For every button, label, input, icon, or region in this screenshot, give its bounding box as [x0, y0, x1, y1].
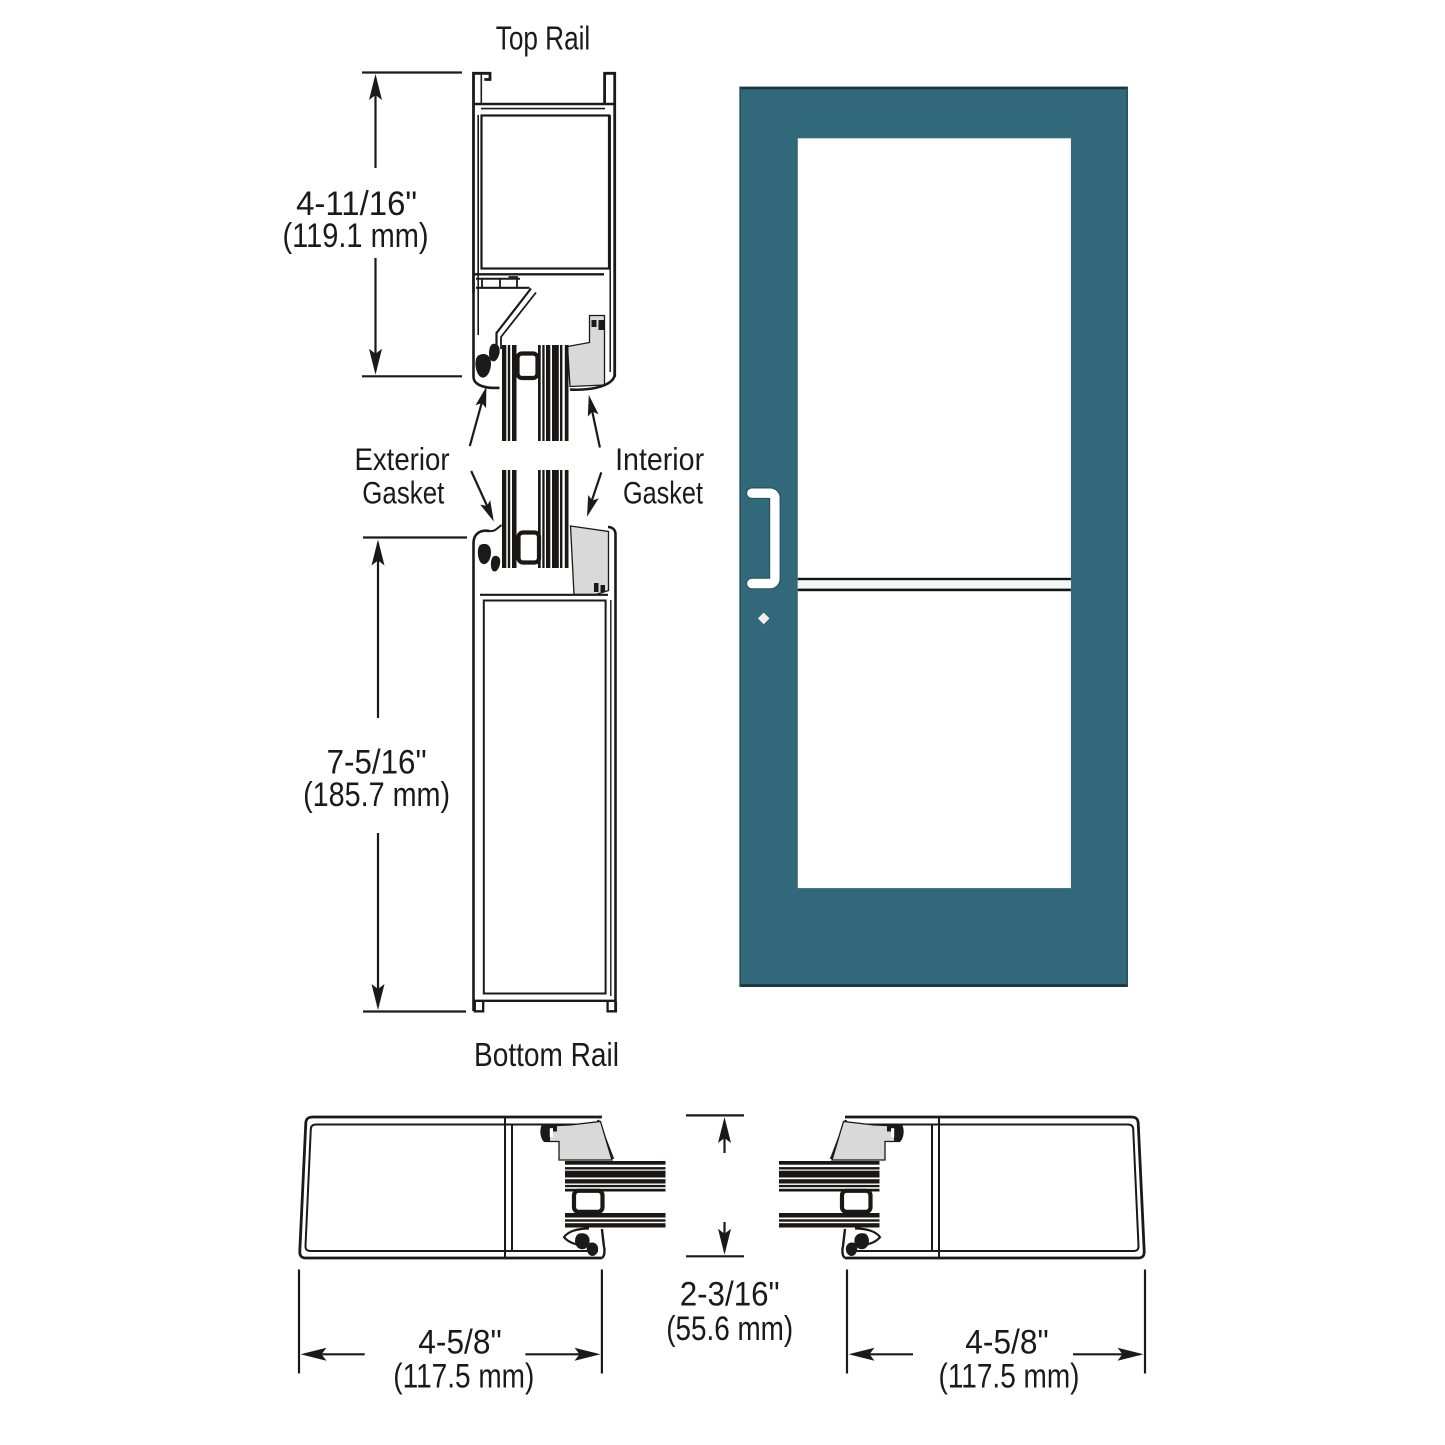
svg-text:Gasket: Gasket	[362, 475, 444, 511]
svg-text:(119.1 mm): (119.1 mm)	[283, 217, 429, 255]
svg-text:Interior: Interior	[615, 441, 704, 477]
svg-text:2-3/16": 2-3/16"	[680, 1276, 780, 1314]
svg-text:4-5/8": 4-5/8"	[418, 1323, 501, 1361]
svg-text:Gasket: Gasket	[623, 475, 703, 511]
svg-text:(117.5 mm): (117.5 mm)	[939, 1358, 1080, 1396]
svg-text:4-5/8": 4-5/8"	[965, 1323, 1048, 1361]
svg-text:(55.6 mm): (55.6 mm)	[666, 1310, 793, 1348]
svg-text:(185.7 mm): (185.7 mm)	[303, 776, 450, 814]
svg-text:Bottom Rail: Bottom Rail	[474, 1036, 619, 1073]
svg-text:(117.5 mm): (117.5 mm)	[393, 1358, 534, 1396]
svg-text:Top Rail: Top Rail	[496, 20, 591, 57]
svg-text:Exterior: Exterior	[355, 441, 450, 477]
